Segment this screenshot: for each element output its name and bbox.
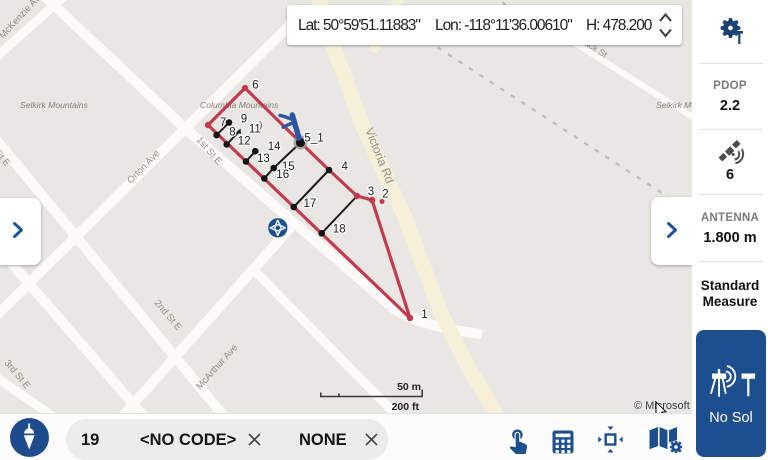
svg-text:3: 3 [368,186,374,198]
svg-text:14: 14 [268,141,281,153]
svg-text:2: 2 [382,189,388,201]
svg-text:50 m: 50 m [397,381,421,393]
svg-text:1: 1 [421,309,427,321]
svg-text:12: 12 [238,136,251,148]
svg-text:13: 13 [257,153,270,165]
svg-text:200 ft: 200 ft [392,401,420,413]
svg-text:Selkirk Mo: Selkirk Mo [656,100,696,110]
svg-text:16: 16 [276,169,289,181]
svg-text:): ) [259,120,262,130]
svg-text:18: 18 [333,224,346,236]
svg-text:9: 9 [241,114,247,126]
svg-text:5_1: 5_1 [304,133,323,145]
svg-text:6: 6 [252,80,258,92]
svg-text:7: 7 [220,117,226,129]
svg-text:17: 17 [304,198,317,210]
svg-text:8: 8 [229,127,235,139]
svg-text:Selkirk Mountains: Selkirk Mountains [20,100,89,110]
svg-text:4: 4 [341,161,348,173]
